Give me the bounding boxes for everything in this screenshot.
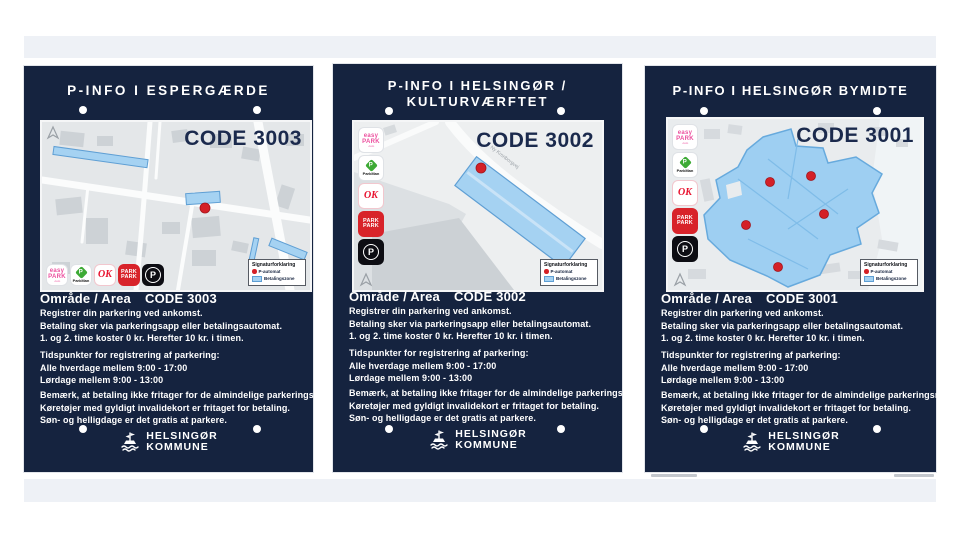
compass-north-icon	[359, 272, 373, 287]
map-kulturvaerftet: Ny Kronborgvej CODE 3002 easy PARK .com …	[352, 120, 604, 292]
info-paragraph: Bemærk, at betaling ikke fritager for de…	[661, 389, 928, 427]
body-line: 1. og 2. time koster 0 kr. Herefter 10 k…	[349, 330, 614, 343]
code-label: CODE 3003	[184, 127, 302, 151]
legend: Signaturforklaring P-automat Betalingszo…	[540, 259, 598, 287]
footnote-smudge-right	[894, 474, 934, 477]
body-line: 1. og 2. time koster 0 kr. Herefter 10 k…	[40, 332, 305, 345]
p-app-icon: P	[142, 264, 164, 286]
screenshot-canvas: P-INFO I ESPERGÆRDE	[0, 0, 960, 541]
parking-app-icons: easy PARK .com P ParkMan OK PARK PARK P	[46, 264, 164, 286]
body-line: Køretøjer med gyldigt invalidekort er fr…	[349, 400, 614, 413]
body-line: Betaling sker via parkeringsapp eller be…	[349, 318, 614, 331]
sign-bymidte: P-INFO I HELSINGØR BYMIDTE	[645, 66, 936, 472]
logo-emblem-icon	[428, 428, 450, 452]
parking-app-icons: easy PARK .com P ParkMan OK PARK PARK P	[358, 127, 384, 265]
body-line: Køretøjer med gyldigt invalidekort er fr…	[661, 402, 928, 415]
ok-app-icon: OK	[94, 264, 116, 286]
logo-text: HELSINGØR KOMMUNE	[146, 431, 217, 453]
easypark-app-icon: easy PARK .com	[358, 127, 384, 153]
body-line: Søn- og helligdage er det gratis at park…	[349, 412, 614, 425]
parkpark-app-icon: PARK PARK	[358, 211, 384, 237]
body-line: Tidspunkter for registrering af parkerin…	[349, 347, 614, 360]
legend-item-betalingszone: Betalingszone	[252, 276, 302, 283]
info-paragraph: Registrer din parkering ved ankomst. Bet…	[40, 307, 305, 345]
body-line: Registrer din parkering ved ankomst.	[661, 307, 928, 320]
p-app-icon: P	[358, 239, 384, 265]
p-ring-icon: P	[145, 267, 161, 283]
logo-emblem-icon	[741, 430, 763, 454]
sign-title: P-INFO I HELSINGØR BYMIDTE	[645, 83, 936, 98]
p-automat-dot-icon	[252, 269, 257, 274]
easypark-app-icon: easy PARK .com	[672, 124, 698, 150]
code-label: CODE 3001	[796, 124, 914, 148]
map-bymidte: CODE 3001 easy PARK .com P ParkMan OK	[666, 117, 924, 292]
body-line: Alle hverdage mellem 9:00 - 17:00	[661, 362, 928, 375]
logo-text: HELSINGØR KOMMUNE	[768, 431, 839, 453]
betalingszone-swatch-icon	[544, 276, 554, 283]
info-paragraph: Registrer din parkering ved ankomst. Bet…	[349, 305, 614, 343]
sign-title: P-INFO I ESPERGÆRDE	[24, 83, 313, 98]
sign-title: P-INFO I HELSINGØR /	[333, 78, 622, 93]
body-line: Registrer din parkering ved ankomst.	[40, 307, 305, 320]
p-automat-marker	[200, 203, 210, 213]
p-automat-dot-icon	[864, 269, 869, 274]
parkman-app-icon: P ParkMan	[70, 264, 92, 286]
betalingszone-swatch-icon	[252, 276, 262, 283]
sign-title-line2: KULTURVÆRFTET	[333, 94, 622, 109]
parkman-diamond-icon: P	[75, 266, 88, 279]
mounting-hole	[700, 107, 708, 115]
p-automat-marker	[476, 163, 486, 173]
parking-app-icons: easy PARK .com P ParkMan OK PARK PARK P	[672, 124, 698, 262]
p-ring-icon: P	[677, 241, 693, 257]
parkpark-app-icon: PARK PARK	[118, 264, 140, 286]
body-line: Bemærk, at betaling ikke fritager for de…	[349, 387, 614, 400]
sign-kulturvaerftet: P-INFO I HELSINGØR / KULTURVÆRFTET	[333, 64, 622, 472]
backdrop-band-top	[24, 36, 936, 58]
municipality-logo: HELSINGØR KOMMUNE	[24, 430, 313, 454]
ok-app-icon: OK	[358, 183, 384, 209]
parkman-app-icon: P ParkMan	[358, 155, 384, 181]
municipality-logo: HELSINGØR KOMMUNE	[333, 428, 622, 452]
area-heading: Område / AreaCODE 3001	[661, 291, 838, 306]
mounting-hole	[385, 107, 393, 115]
body-line: Køretøjer med gyldigt invalidekort er fr…	[40, 402, 305, 415]
body-line: Registrer din parkering ved ankomst.	[349, 305, 614, 318]
body-line: Bemærk, at betaling ikke fritager for de…	[661, 389, 928, 402]
area-heading: Område / AreaCODE 3002	[349, 289, 526, 304]
body-line: Alle hverdage mellem 9:00 - 17:00	[40, 362, 305, 375]
sign-espergaerde: P-INFO I ESPERGÆRDE	[24, 66, 313, 472]
footnote-smudge-left	[651, 474, 697, 477]
mounting-hole	[79, 106, 87, 114]
legend: Signaturforklaring P-automat Betalingszo…	[248, 259, 306, 287]
parkman-diamond-icon: P	[679, 156, 692, 169]
legend: Signaturforklaring P-automat Betalingszo…	[860, 259, 918, 287]
mounting-hole	[253, 106, 261, 114]
parkman-diamond-icon: P	[365, 159, 378, 172]
mounting-hole	[557, 107, 565, 115]
backdrop-band-bottom	[24, 479, 936, 502]
ok-app-icon: OK	[672, 180, 698, 206]
legend-item-p-automat: P-automat	[544, 269, 594, 274]
body-line: Bemærk, at betaling ikke fritager for de…	[40, 389, 305, 402]
body-line: Lørdage mellem 9:00 - 13:00	[661, 374, 928, 387]
info-paragraph: Bemærk, at betaling ikke fritager for de…	[40, 389, 305, 427]
map-espergaerde: CODE 3003 easy PARK .com P ParkMan OK	[40, 120, 312, 292]
p-app-icon: P	[672, 236, 698, 262]
body-line: Søn- og helligdage er det gratis at park…	[661, 414, 928, 427]
municipality-logo: HELSINGØR KOMMUNE	[645, 430, 936, 454]
easypark-app-icon: easy PARK .com	[46, 264, 68, 286]
info-paragraph: Tidspunkter for registrering af parkerin…	[40, 349, 305, 387]
legend-item-p-automat: P-automat	[864, 269, 914, 274]
logo-text: HELSINGØR KOMMUNE	[455, 429, 526, 451]
p-automat-dot-icon	[544, 269, 549, 274]
body-line: Lørdage mellem 9:00 - 13:00	[40, 374, 305, 387]
body-line: Betaling sker via parkeringsapp eller be…	[661, 320, 928, 333]
info-paragraph: Tidspunkter for registrering af parkerin…	[349, 347, 614, 385]
body-line: Alle hverdage mellem 9:00 - 17:00	[349, 360, 614, 373]
body-line: Tidspunkter for registrering af parkerin…	[661, 349, 928, 362]
code-label: CODE 3002	[476, 129, 594, 153]
logo-emblem-icon	[119, 430, 141, 454]
body-line: Lørdage mellem 9:00 - 13:00	[349, 372, 614, 385]
body-line: Tidspunkter for registrering af parkerin…	[40, 349, 305, 362]
body-line: 1. og 2. time koster 0 kr. Herefter 10 k…	[661, 332, 928, 345]
parkman-app-icon: P ParkMan	[672, 152, 698, 178]
mounting-hole	[873, 107, 881, 115]
compass-north-icon	[46, 125, 60, 140]
body-line: Søn- og helligdage er det gratis at park…	[40, 414, 305, 427]
area-heading: Område / AreaCODE 3003	[40, 291, 217, 306]
parkpark-app-icon: PARK PARK	[672, 208, 698, 234]
betalingszone-swatch-icon	[864, 276, 874, 283]
info-paragraph: Tidspunkter for registrering af parkerin…	[661, 349, 928, 387]
legend-item-p-automat: P-automat	[252, 269, 302, 274]
legend-item-betalingszone: Betalingszone	[544, 276, 594, 283]
body-line: Betaling sker via parkeringsapp eller be…	[40, 320, 305, 333]
info-paragraph: Bemærk, at betaling ikke fritager for de…	[349, 387, 614, 425]
info-paragraph: Registrer din parkering ved ankomst. Bet…	[661, 307, 928, 345]
legend-item-betalingszone: Betalingszone	[864, 276, 914, 283]
compass-north-icon	[673, 272, 687, 287]
p-ring-icon: P	[363, 244, 379, 260]
